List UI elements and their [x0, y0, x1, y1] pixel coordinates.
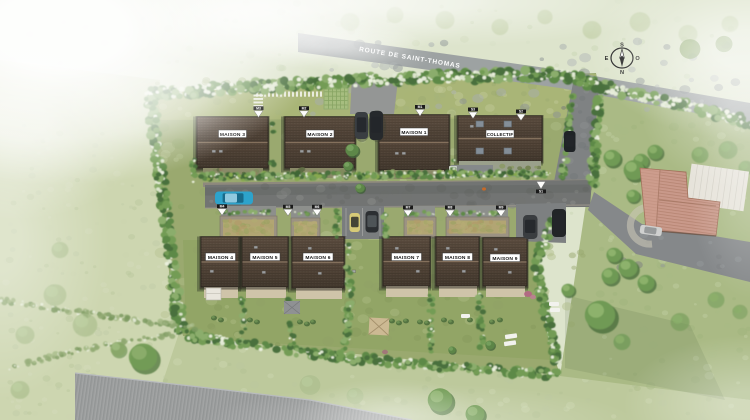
svg-text:M1: M1: [418, 105, 423, 109]
svg-text:COLLECTIF: COLLECTIF: [487, 132, 514, 137]
svg-text:MAISON 6: MAISON 6: [305, 255, 330, 261]
svg-text:S3: S3: [471, 108, 475, 112]
svg-text:S1: S1: [539, 190, 543, 194]
svg-text:MAISON 4: MAISON 4: [208, 255, 233, 261]
svg-text:MAISON 2: MAISON 2: [307, 132, 332, 138]
svg-text:M5: M5: [286, 205, 291, 209]
svg-text:M9: M9: [499, 206, 504, 210]
svg-text:MAISON 8: MAISON 8: [445, 255, 470, 261]
svg-text:M2: M2: [302, 106, 307, 110]
svg-text:MAISON 1: MAISON 1: [401, 130, 426, 136]
svg-text:MAISON 7: MAISON 7: [394, 255, 419, 261]
svg-text:M8: M8: [448, 206, 453, 210]
svg-text:M7: M7: [406, 206, 411, 210]
svg-text:M6: M6: [315, 205, 320, 209]
svg-text:MAISON 9: MAISON 9: [492, 256, 517, 262]
svg-text:MAISON 5: MAISON 5: [252, 255, 277, 261]
svg-text:S2: S2: [519, 110, 523, 114]
svg-text:M4: M4: [220, 204, 225, 208]
